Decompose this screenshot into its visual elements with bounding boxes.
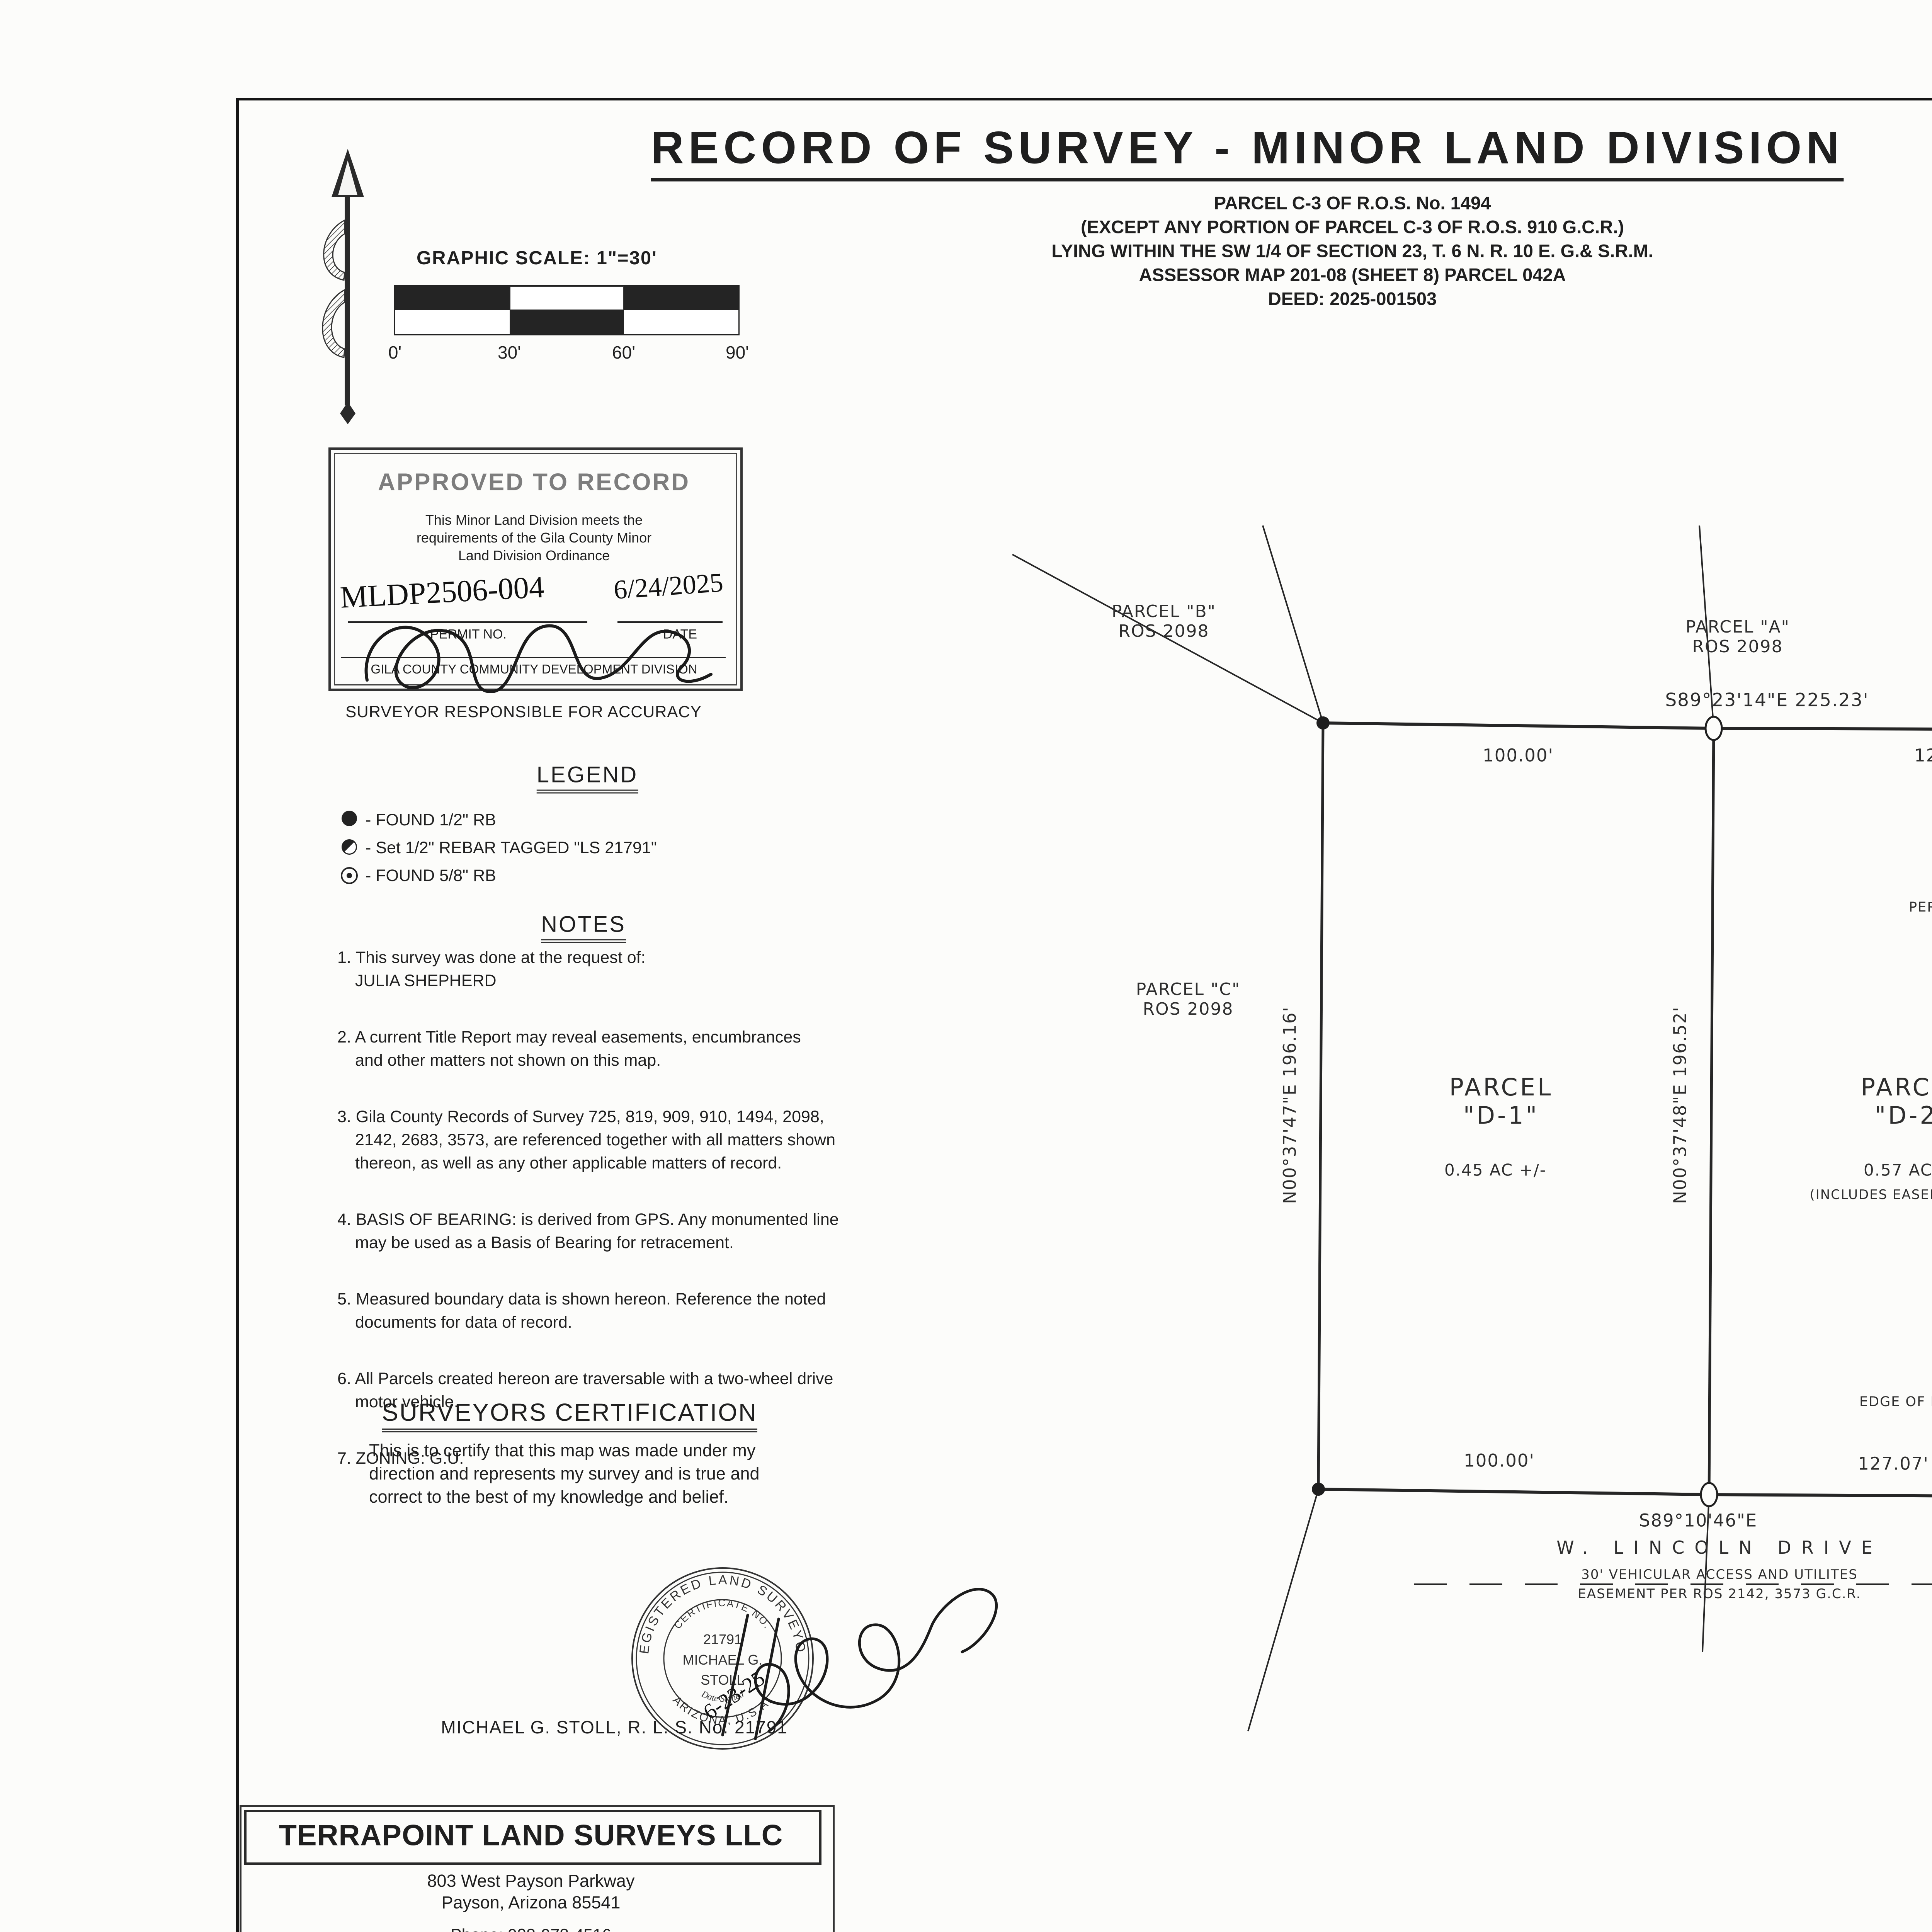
bearing-bottom: S89°10'46"E <box>1639 1510 1757 1531</box>
set-rebar-monument <box>1706 717 1722 740</box>
bearing-mid: N00°37'48"E 196.52' <box>1670 1006 1690 1204</box>
bearing-west: N00°37'47"E 196.16' <box>1280 1006 1300 1204</box>
found-rebar-monument <box>1312 1483 1325 1496</box>
lincoln-easement-line1: 30' VEHICULAR ACCESS AND UTILITES <box>1581 1567 1858 1582</box>
parcel-d2-label: PARCEL "D-2" <box>1861 1073 1932 1129</box>
edge-of-road-label: EDGE OF EXISTING ROAD <box>1859 1394 1932 1410</box>
parcel-c-label: PARCEL "C" ROS 2098 <box>1136 980 1240 1019</box>
bearing-top: S89°23'14"E 225.23' <box>1665 690 1869 711</box>
dist-top-left: 100.00' <box>1483 745 1554 766</box>
dist-top-right: 125.23' <box>1914 745 1932 766</box>
plat-drawing <box>0 0 1932 1932</box>
dist-bottom-left: 100.00' <box>1464 1451 1535 1471</box>
lincoln-easement-line2: EASEMENT PER ROS 2142, 3573 G.C.R. <box>1578 1586 1861 1602</box>
dist-bottom-right: 127.07' <box>1858 1454 1929 1474</box>
parcel-d2-area-note: (INCLUDES EASEMENT AREA) <box>1810 1187 1932 1202</box>
parcel-d2-area: 0.57 AC +/- <box>1864 1161 1932 1180</box>
parcel-b-label: PARCEL "B" ROS 2098 <box>1112 602 1216 641</box>
found-rebar-monument <box>1316 716 1330 730</box>
parcel-d1-area: 0.45 AC +/- <box>1444 1161 1546 1180</box>
set-rebar-monument <box>1701 1483 1717 1506</box>
survey-sheet: 6015 6015 RECORD OF SURVEY - MINOR LAND … <box>0 0 1932 1932</box>
parcel-a-label: PARCEL "A" ROS 2098 <box>1685 617 1790 656</box>
easement-20-callout: 20' EASEMENT PER 2001-12943 G.C.R. <box>1909 884 1932 915</box>
parcel-d1-label: PARCEL "D-1" <box>1449 1073 1553 1129</box>
lincoln-drive-label: W. LINCOLN DRIVE <box>1556 1537 1883 1558</box>
